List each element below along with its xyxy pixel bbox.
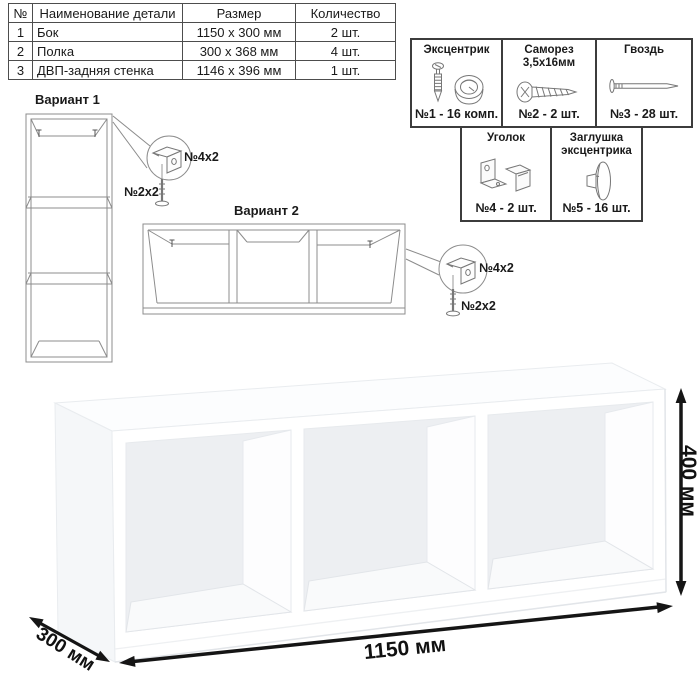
hardware-count-label: №5 - 16 шт. [552, 201, 641, 215]
col-qty: Количество [296, 4, 396, 23]
assembly-instruction-sheet: № Наименование детали Размер Количество … [0, 0, 700, 690]
variant2-bracket-label: №4х2 [479, 261, 514, 275]
part-name: Бок [33, 23, 183, 42]
hardware-count-label: №1 - 16 комп. [412, 107, 501, 121]
hardware-count-label: №4 - 2 шт. [462, 201, 550, 215]
variant1-bracket-label: №4х2 [184, 150, 219, 164]
variant1-title: Вариант 1 [35, 92, 100, 107]
part-num: 3 [9, 61, 33, 80]
hardware-title: Эксцентрик [423, 44, 489, 56]
part-qty: 1 шт. [296, 61, 396, 80]
variant2-screw-label: №2х2 [461, 299, 496, 313]
col-num: № [9, 4, 33, 23]
part-qty: 2 шт. [296, 23, 396, 42]
eccentric-cam-icon [422, 60, 492, 112]
nail-icon [607, 78, 681, 94]
table-row: 2 Полка 300 x 368 мм 4 шт. [9, 42, 396, 61]
hardware-item-screw: Саморез 3,5х16мм №2 - 2 шт. [501, 38, 597, 128]
hardware-title: Гвоздь [624, 44, 664, 56]
hardware-title: Саморез [524, 44, 573, 56]
hardware-subtitle: 3,5х16мм [523, 57, 575, 69]
parts-table: № Наименование детали Размер Количество … [8, 3, 396, 80]
table-row: 3 ДВП-задняя стенка 1146 x 396 мм 1 шт. [9, 61, 396, 80]
variant2-title: Вариант 2 [234, 203, 299, 218]
part-size: 1146 x 396 мм [183, 61, 296, 80]
part-num: 1 [9, 23, 33, 42]
hardware-subtitle: эксцентрика [561, 145, 632, 157]
parts-table-header: № Наименование детали Размер Количество [9, 4, 396, 23]
variant2-drawing [143, 224, 487, 316]
part-size: 300 x 368 мм [183, 42, 296, 61]
part-name: Полка [33, 42, 183, 61]
variant1-screw-label: №2х2 [124, 185, 159, 199]
part-num: 2 [9, 42, 33, 61]
table-row: 1 Бок 1150 x 300 мм 2 шт. [9, 23, 396, 42]
part-qty: 4 шт. [296, 42, 396, 61]
variant1-drawing [26, 114, 191, 362]
col-name: Наименование детали [33, 4, 183, 23]
part-size: 1150 x 300 мм [183, 23, 296, 42]
hardware-count-label: №2 - 2 шт. [503, 107, 595, 121]
hardware-item-bracket: Уголок №4 - 2 шт. [460, 126, 552, 222]
hardware-item-eccentric: Эксцентрик №1 - 16 комп. [410, 38, 503, 128]
hardware-count-label: №3 - 28 шт. [597, 107, 691, 121]
hardware-item-cap: Заглушка эксцентрика №5 - 16 шт. [550, 126, 643, 222]
col-size: Размер [183, 4, 296, 23]
cam-cap-icon [577, 158, 617, 204]
hardware-title: Заглушка [570, 132, 623, 144]
screw-icon [516, 78, 582, 106]
corner-bracket-icon [476, 155, 536, 199]
hardware-title: Уголок [487, 132, 525, 144]
part-name: ДВП-задняя стенка [33, 61, 183, 80]
hardware-item-nail: Гвоздь №3 - 28 шт. [595, 38, 693, 128]
height-dimension-label: 400 мм [677, 427, 699, 535]
